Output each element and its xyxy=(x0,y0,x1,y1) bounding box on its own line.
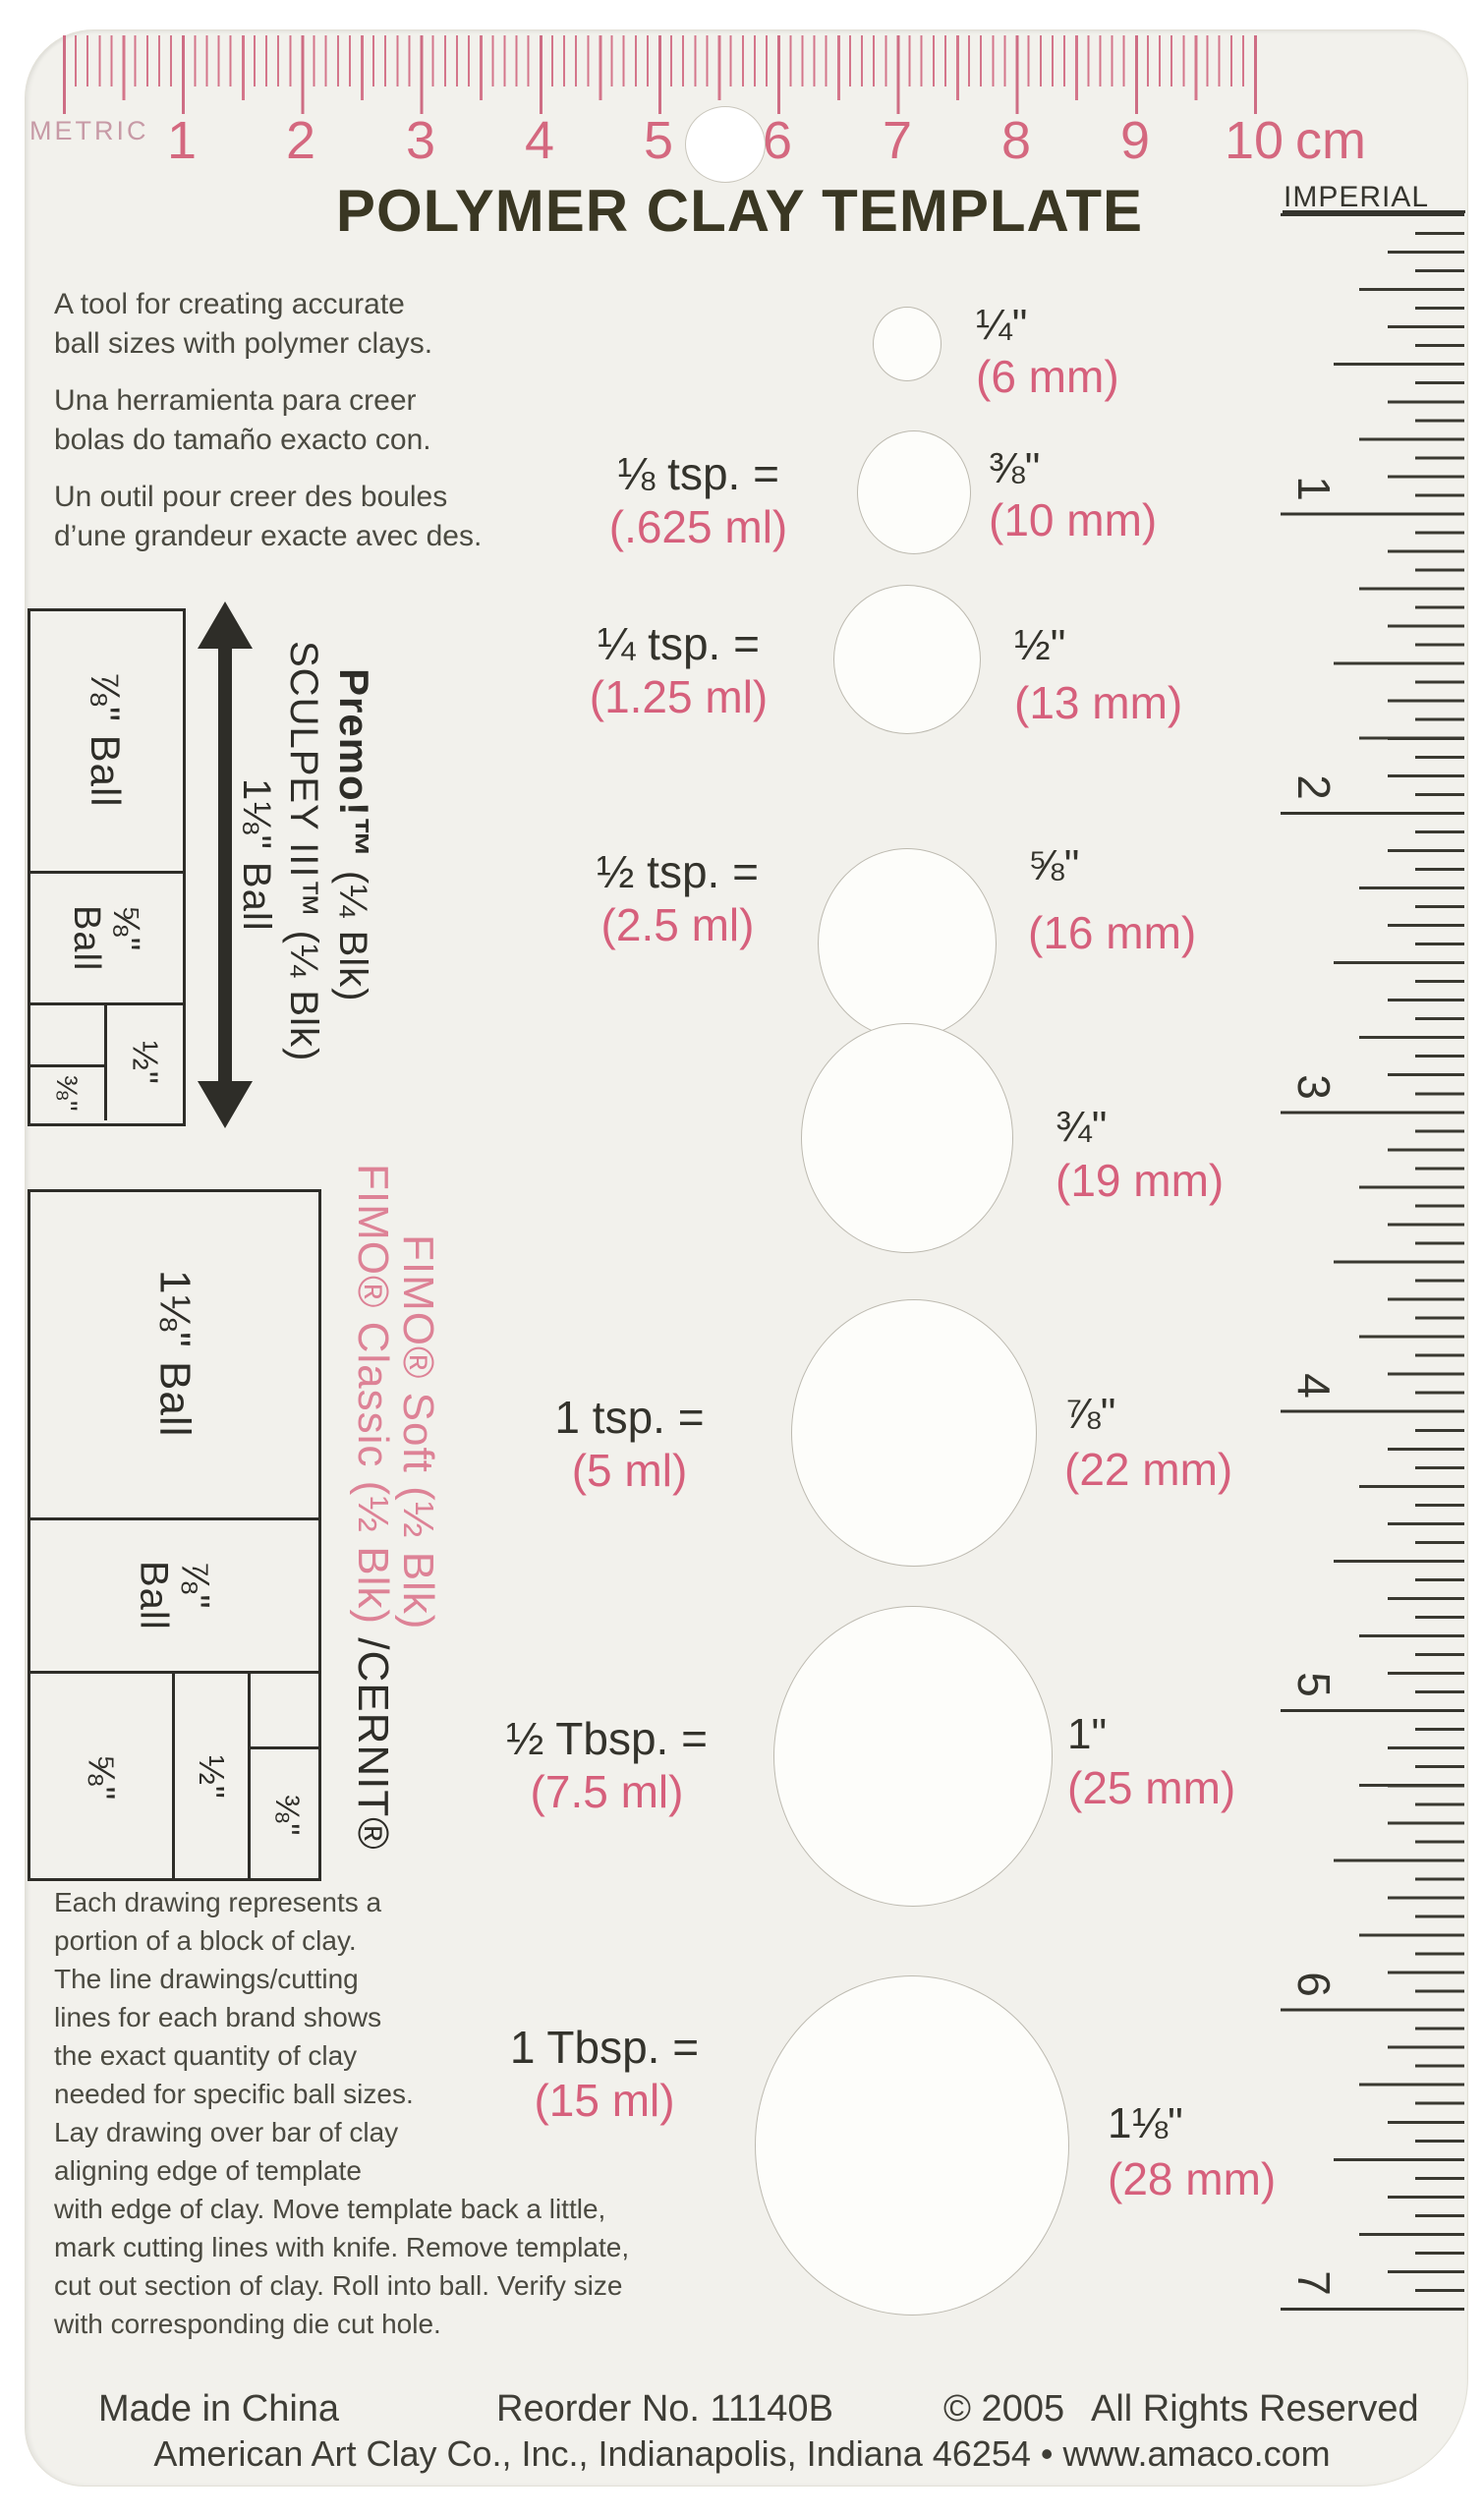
metric-number: 3 xyxy=(406,110,435,171)
cell-label: ⅞" Ball xyxy=(134,1561,216,1630)
hole-mm-label: (19 mm) xyxy=(1056,1154,1224,1207)
metric-unit: cm xyxy=(1295,110,1366,171)
hole-inch-label: ⅜" xyxy=(989,444,1040,493)
cell-label: 1⅛" Ball xyxy=(151,1270,197,1437)
ml-label: (.625 ml) xyxy=(588,500,809,553)
imperial-inch-ticks xyxy=(1281,213,1464,2313)
hole-10mm xyxy=(857,430,971,554)
cell-label: ⅜" xyxy=(268,1795,304,1836)
brand-fimo-classic-name: FIMO® Classic (½ Blk) xyxy=(349,1164,397,1637)
hole-13mm xyxy=(833,585,981,734)
hole-inch-label: 1" xyxy=(1067,1710,1107,1759)
hole-mm-label: (22 mm) xyxy=(1064,1443,1232,1496)
metric-number: 2 xyxy=(286,110,315,171)
metric-number: 5 xyxy=(644,110,673,171)
footer-rights: All Rights Reserved xyxy=(1091,2388,1419,2430)
cell-label: ⅞" Ball xyxy=(84,671,127,808)
fimo-cell-38: ⅜" xyxy=(251,1749,321,1881)
metric-number: 10 xyxy=(1225,110,1284,171)
hole-inch-label: ¼" xyxy=(976,301,1027,350)
imperial-number: 5 xyxy=(1287,1672,1341,1697)
amount-label: ½ Tbsp. = (7.5 ml) xyxy=(486,1712,727,1818)
hole-inch-label: ¾" xyxy=(1056,1103,1107,1152)
premo-cell-38: ⅜" xyxy=(28,1067,104,1120)
footer-made-in: Made in China xyxy=(98,2388,339,2430)
tsp-label: ⅛ tsp. = xyxy=(588,447,809,500)
metric-number: 1 xyxy=(167,110,197,171)
hole-25mm xyxy=(773,1606,1053,1907)
intro-paragraph-es: Una herramienta para creer bolas do tama… xyxy=(54,381,526,460)
ml-label: (5 ml) xyxy=(529,1444,730,1497)
amount-label: 1 tsp. = (5 ml) xyxy=(529,1391,730,1497)
amount-label: ⅛ tsp. = (.625 ml) xyxy=(588,447,809,553)
brand-fimo-classic: FIMO® Classic (½ Blk) /CERNIT® xyxy=(350,1164,440,1851)
metric-number: 6 xyxy=(763,110,792,171)
hole-22mm xyxy=(791,1299,1037,1567)
cell-label: ½" xyxy=(193,1755,230,1800)
tsp-label: 1 tsp. = xyxy=(529,1391,730,1444)
cell-label: ⅝" Ball xyxy=(66,905,144,971)
amount-label: ½ tsp. = (2.5 ml) xyxy=(562,845,793,951)
hole-mm-label: (10 mm) xyxy=(989,493,1157,546)
double-arrow-icon xyxy=(198,1081,253,1128)
hole-inch-label: ⅝" xyxy=(1028,841,1079,890)
premo-cell-78: ⅞" Ball xyxy=(28,608,183,871)
fimo-cell-12: ½" xyxy=(175,1674,248,1881)
tsp-label: ½ tsp. = xyxy=(562,845,793,898)
imperial-number: 6 xyxy=(1287,1972,1341,1997)
hole-mm-label: (16 mm) xyxy=(1028,906,1196,959)
metric-number: 7 xyxy=(883,110,912,171)
ml-label: (2.5 ml) xyxy=(562,898,793,951)
cell-label: ⅝" xyxy=(81,1754,120,1801)
intro-paragraph-fr: Un outil pour creer des boules d’une gra… xyxy=(54,478,526,556)
fimo-cell-58: ⅝" xyxy=(28,1674,172,1881)
cell-label: ½" xyxy=(127,1041,164,1085)
footer-reorder: Reorder No. 11140B xyxy=(496,2388,833,2430)
hole-mm-label: (28 mm) xyxy=(1108,2152,1276,2205)
imperial-ruler xyxy=(1278,213,1464,2313)
polymer-clay-template-photo: METRIC 1 2 3 4 5 6 7 8 9 10 cm POLYMER C… xyxy=(0,0,1484,2516)
premo-cell-12: ½" xyxy=(107,1005,183,1120)
intro-paragraph-en: A tool for creating accurate ball sizes … xyxy=(54,285,526,364)
cell-label: ⅜" xyxy=(50,1075,82,1113)
hole-mm-label: (6 mm) xyxy=(976,350,1119,403)
arrow-shaft xyxy=(218,644,232,1084)
metric-label: METRIC xyxy=(29,116,149,146)
ml-label: (1.25 ml) xyxy=(568,670,789,723)
hole-inch-label: ½" xyxy=(1014,621,1065,670)
arrow-size-label: 1⅛" Ball xyxy=(236,778,277,932)
footer-company-line: American Art Clay Co., Inc., Indianapoli… xyxy=(59,2433,1425,2475)
hole-inch-label: 1⅛" xyxy=(1108,2099,1183,2148)
imperial-number: 2 xyxy=(1287,774,1341,800)
metric-cm-ticks xyxy=(63,35,1258,114)
tsp-label: ¼ tsp. = xyxy=(568,617,789,670)
hole-mm-label: (13 mm) xyxy=(1014,676,1182,729)
double-arrow-icon xyxy=(198,601,253,649)
page-title: POLYMER CLAY TEMPLATE xyxy=(324,177,1155,245)
tsp-label: ½ Tbsp. = xyxy=(486,1712,727,1765)
brand-premo-name: Premo!™ xyxy=(331,668,377,859)
imperial-number: 1 xyxy=(1287,476,1341,501)
metric-number: 9 xyxy=(1120,110,1150,171)
hole-19mm xyxy=(801,1023,1013,1253)
brand-premo-qty: (¼ Blk) xyxy=(331,859,374,1002)
instructions-text: Each drawing represents a portion of a b… xyxy=(54,1883,722,2343)
footer-copyright: © 2005 xyxy=(943,2388,1064,2430)
amount-label: ¼ tsp. = (1.25 ml) xyxy=(568,617,789,723)
imperial-number: 3 xyxy=(1287,1074,1341,1100)
hole-28mm xyxy=(755,1975,1069,2316)
brand-cernit: /CERNIT® xyxy=(349,1637,397,1850)
hole-6mm xyxy=(873,307,942,381)
hole-mm-label: (25 mm) xyxy=(1067,1761,1235,1814)
brand-sculpey: SCULPEY III™ (¼ Blk) xyxy=(283,641,324,1061)
metric-ruler xyxy=(63,35,1258,114)
premo-cell-58: ⅝" Ball xyxy=(28,874,183,1002)
hole-inch-label: ⅞" xyxy=(1064,1390,1115,1439)
intro-text: A tool for creating accurate ball sizes … xyxy=(54,285,526,574)
ml-label: (7.5 ml) xyxy=(486,1765,727,1818)
brand-premo: Premo!™ (¼ Blk) xyxy=(332,668,392,1002)
hanging-hole xyxy=(685,106,766,183)
fimo-cell-118: 1⅛" Ball xyxy=(28,1189,321,1517)
fimo-cell-78: ⅞" Ball xyxy=(28,1520,321,1671)
metric-number: 8 xyxy=(1001,110,1031,171)
imperial-label: IMPERIAL xyxy=(1284,181,1429,214)
hole-16mm xyxy=(818,848,997,1039)
metric-number: 4 xyxy=(525,110,554,171)
imperial-number: 7 xyxy=(1287,2270,1341,2296)
imperial-number: 4 xyxy=(1287,1373,1341,1399)
